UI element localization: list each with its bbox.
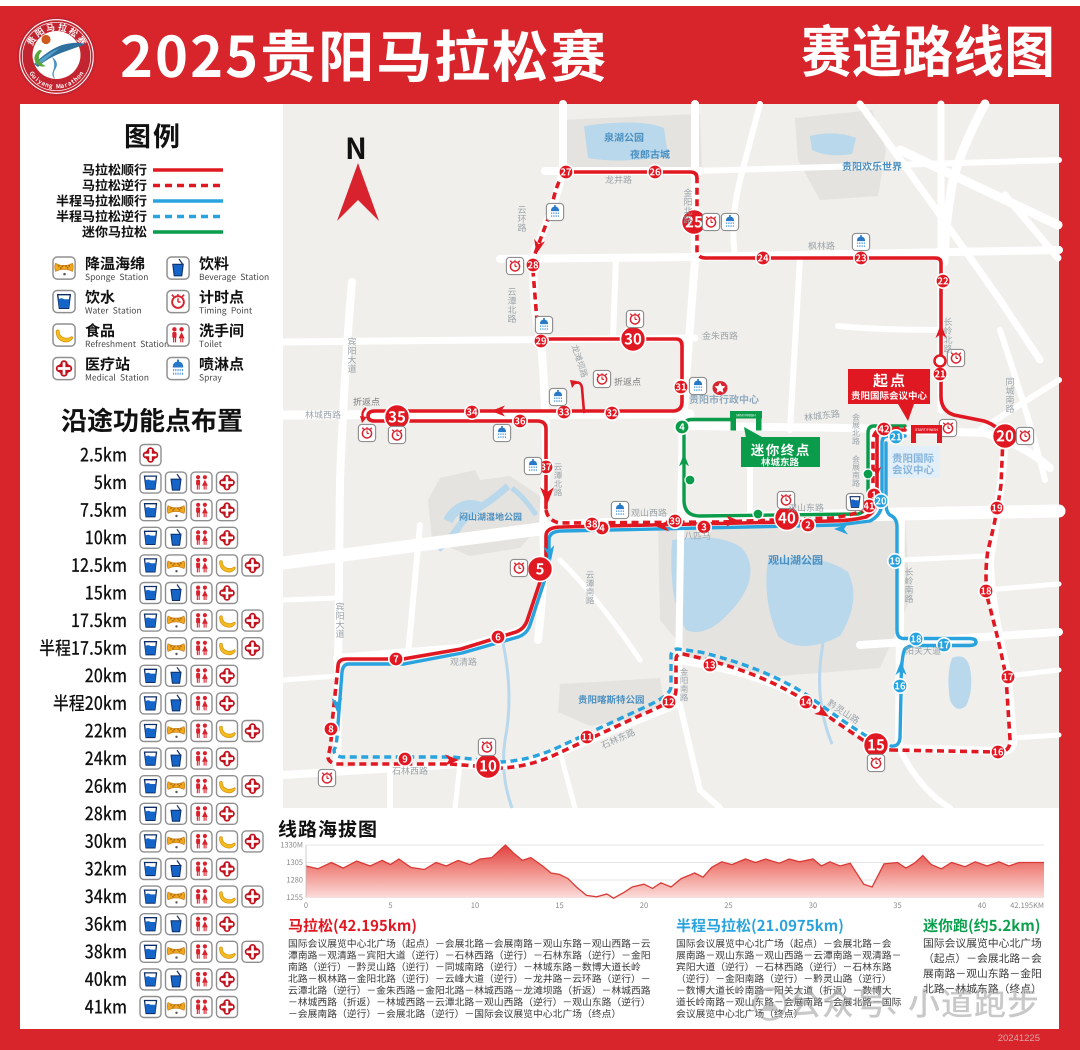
svg-text:20241225: 20241225 <box>998 1033 1040 1044</box>
svg-text:START/FINISH: START/FINISH <box>915 428 938 432</box>
svg-text:MINI FINISH: MINI FINISH <box>736 414 756 418</box>
